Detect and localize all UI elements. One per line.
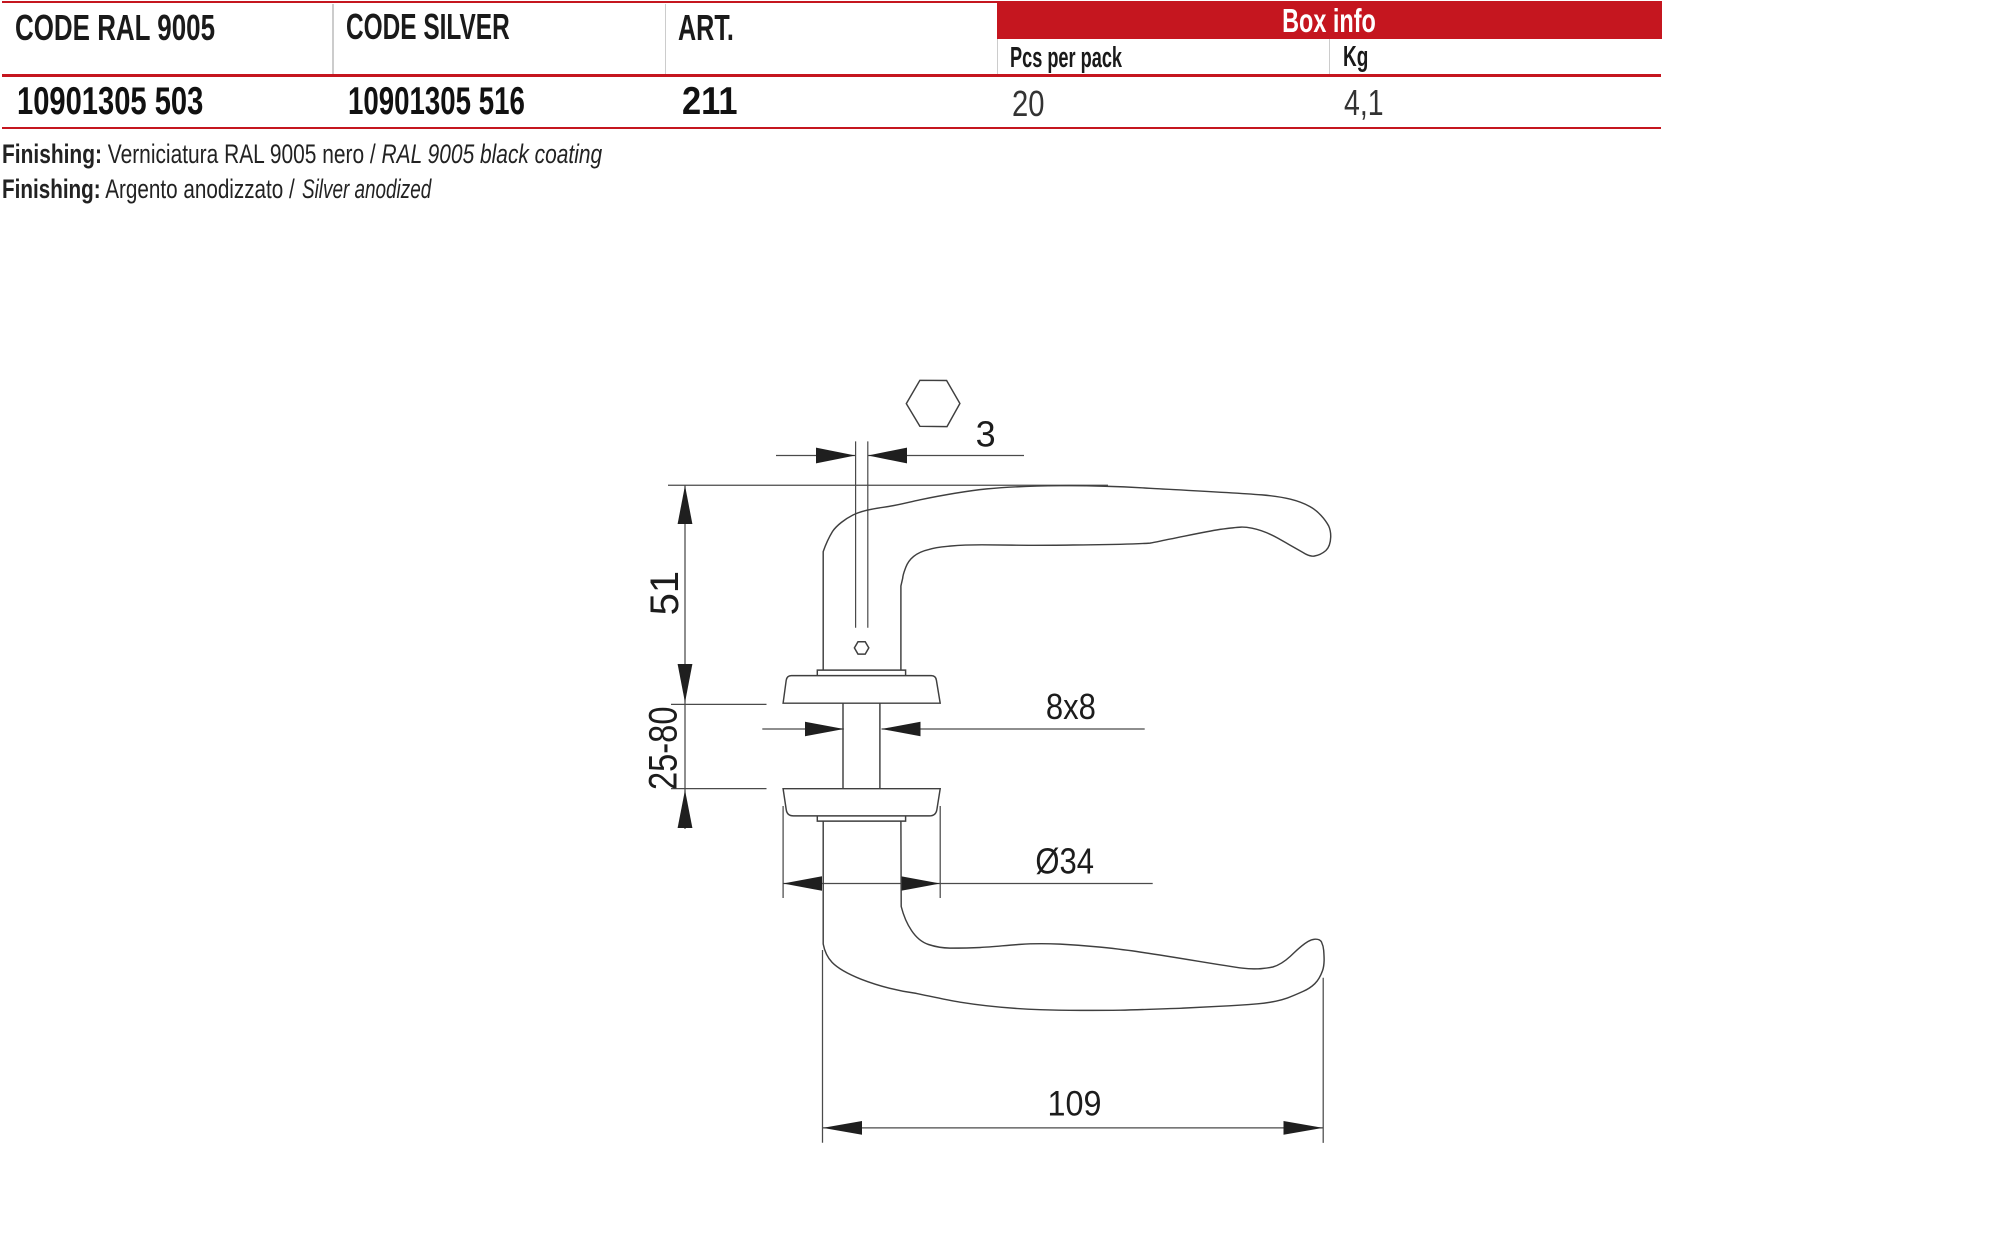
svg-text:3: 3 bbox=[976, 414, 996, 455]
svg-text:51: 51 bbox=[643, 571, 687, 616]
svg-text:8x8: 8x8 bbox=[1046, 686, 1096, 727]
svg-text:109: 109 bbox=[1048, 1085, 1102, 1124]
svg-text:25-80: 25-80 bbox=[642, 707, 686, 791]
svg-text:Ø34: Ø34 bbox=[1035, 841, 1094, 882]
